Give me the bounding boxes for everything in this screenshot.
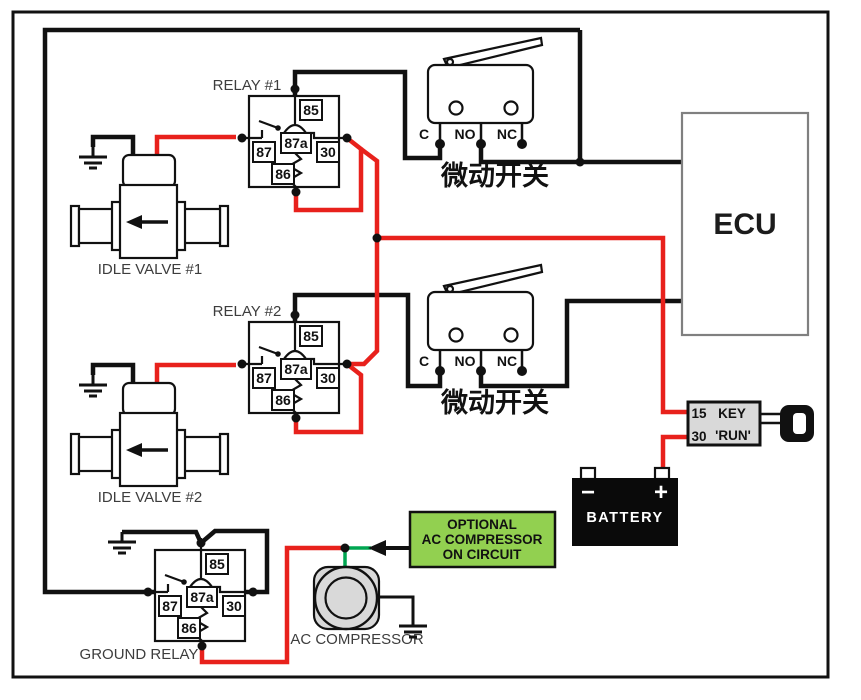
key-run-switch: 15 30 KEY 'RUN' [688, 402, 814, 445]
idle-valve-1: IDLE VALVE #1 [71, 147, 228, 278]
valve-pipe-cap [71, 434, 79, 474]
optional-box-line1: OPTIONAL [447, 517, 517, 532]
ac-compressor-label: AC COMPRESSOR [290, 631, 424, 648]
optional-box-line2: AC COMPRESSOR [422, 532, 543, 547]
valve-pipe [184, 209, 220, 243]
compressor-clutch-wire [345, 548, 371, 567]
battery: − + BATTERY [572, 468, 678, 546]
valve-solenoid-cap [123, 155, 175, 187]
key-bow-hole [793, 413, 806, 434]
battery-minus-sign: − [581, 479, 595, 506]
key-label-line2: 'RUN' [715, 428, 751, 443]
idle-valve1-label: IDLE VALVE #1 [98, 261, 203, 278]
micro-switch1-name: 微动开关 [440, 161, 549, 191]
key-pin15-label: 15 [691, 406, 707, 421]
key-label-line1: KEY [718, 406, 746, 421]
ground-relay-label: GROUND RELAY [80, 646, 199, 663]
green-wires [341, 544, 372, 568]
relay1-label: RELAY #1 [213, 77, 282, 94]
valve1-ground [79, 147, 107, 168]
valve-pipe-cap [71, 206, 79, 246]
bus-to-relay2-30-wire [347, 238, 377, 364]
micro-switch-1: 微动开关 [419, 38, 549, 191]
idle-valve2-label: IDLE VALVE #2 [98, 489, 203, 506]
battery-plus-sign: + [654, 479, 668, 506]
compressor-ground-wire [377, 597, 413, 616]
wiring-diagram-page: 85 87 87a 30 86 C NO [0, 0, 861, 700]
battery-positive-post [655, 468, 669, 479]
ecu-label: ECU [713, 208, 776, 241]
ground-relay: GROUND RELAY [80, 532, 258, 663]
valve-solenoid-cap [123, 383, 175, 415]
micro-switch-2: 微动开关 [419, 265, 549, 418]
key30-to-battery-wire [663, 437, 688, 471]
diagram-frame [13, 12, 828, 677]
compressor-junction-dot [341, 544, 350, 553]
ac-compressor: AC COMPRESSOR [290, 567, 427, 648]
key-pin30-label: 30 [691, 429, 706, 444]
valve-pipe-cap [220, 206, 228, 246]
battery-negative-post [581, 468, 595, 479]
ecu-box: ECU [682, 113, 808, 335]
ground-relay-ground [108, 532, 136, 553]
valve-pipe [184, 437, 220, 471]
relay1-to-bus-wire [361, 149, 377, 238]
relay2-label: RELAY #2 [213, 303, 282, 320]
idle-valve-2: IDLE VALVE #2 [71, 375, 228, 506]
optional-arrow-head [368, 540, 386, 556]
micro-switch2-name: 微动开关 [440, 388, 549, 418]
optional-ac-box: OPTIONAL AC COMPRESSOR ON CIRCUIT [368, 512, 555, 567]
valve2-ground [79, 375, 107, 396]
junction-dot [576, 158, 585, 167]
wiring-diagram: 85 87 87a 30 86 C NO [0, 0, 861, 700]
compressor-clutch [326, 578, 367, 619]
bus-junction-dot [373, 234, 382, 243]
valve-pipe-cap [220, 434, 228, 474]
battery-label: BATTERY [586, 510, 663, 526]
optional-box-line3: ON CIRCUIT [443, 547, 522, 562]
